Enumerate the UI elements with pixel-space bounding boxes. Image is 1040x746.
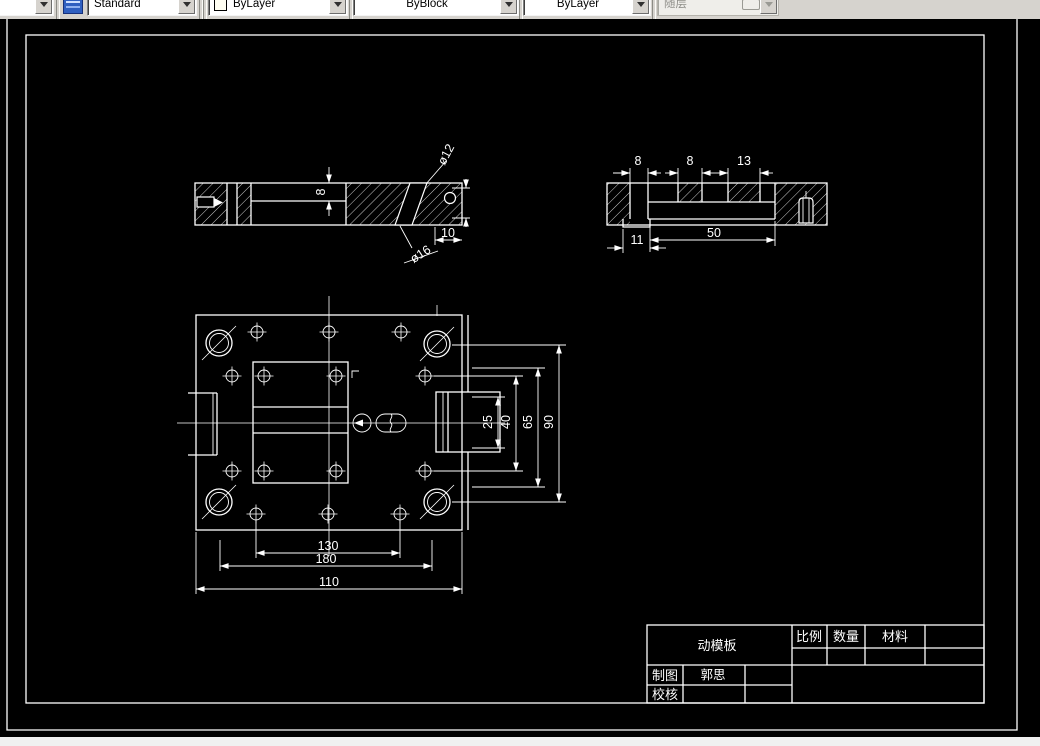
lineweight-combo[interactable]: ByBlock [353, 0, 519, 16]
layers-icon [63, 0, 83, 14]
guide-hole [420, 327, 454, 361]
material-label: 材料 [882, 629, 908, 644]
dim-label-90: 90 [542, 415, 556, 429]
chevron-down-icon[interactable] [35, 0, 52, 14]
sheet-border [7, 19, 1017, 730]
color-combo[interactable]: ByLayer [208, 0, 348, 16]
section-mark [352, 371, 359, 378]
guide-hole [202, 485, 236, 519]
plot-style-value: 随层 [658, 0, 738, 15]
plot-style-combo: 随层 [657, 0, 779, 16]
linetype-preview-box [742, 0, 760, 10]
chevron-down-icon[interactable] [178, 0, 195, 14]
plan-view: 25 40 65 90 130 180 110 [177, 296, 566, 594]
checker-label: 校核 [652, 687, 678, 702]
dim-label-50: 50 [707, 226, 721, 240]
drawing-canvas[interactable]: 8 ø12 10 ø16 [0, 19, 1040, 737]
drafter-name: 郭思 [700, 667, 725, 682]
plate-section-view: 8 8 13 50 11 [607, 154, 827, 253]
color-swatch [214, 0, 227, 11]
text-style-value: Standard [88, 0, 178, 15]
title-block: 动模板 比例 数量 材料 制图 郭思 校核 [647, 625, 984, 703]
chevron-down-icon[interactable] [329, 0, 346, 14]
quantity-label: 数量 [833, 629, 859, 644]
dim-label-25: 25 [481, 415, 495, 429]
dim-label-o16: ø16 [408, 242, 434, 265]
dim-label-8-step: 8 [687, 154, 694, 168]
docked-combo-partial[interactable] [0, 0, 54, 16]
drafter-label: 制图 [652, 668, 678, 683]
toolbar-separator [652, 0, 656, 19]
cad-drawing: 8 ø12 10 ø16 [0, 19, 1040, 737]
dim-label-10: 10 [441, 226, 455, 240]
dim-label-110: 110 [319, 575, 339, 589]
color-value: ByLayer [227, 0, 329, 15]
dim-label-65: 65 [521, 415, 535, 429]
part-name: 动模板 [697, 638, 736, 653]
toolbar: Standard ByLayer ByBlock ByLayer 随层 [0, 0, 1040, 20]
chevron-down-icon [760, 0, 777, 14]
toolbar-separator [203, 0, 207, 19]
toolbar-separator [56, 0, 60, 19]
guide-hole [420, 485, 454, 519]
dim-label-130: 130 [318, 539, 339, 553]
scale-label: 比例 [796, 629, 822, 644]
linetype-combo[interactable]: ByLayer [523, 0, 651, 16]
chevron-down-icon[interactable] [500, 0, 517, 14]
dim-label-8-thickness: 8 [314, 188, 328, 195]
chevron-down-icon[interactable] [632, 0, 649, 14]
guide-hole [202, 326, 236, 360]
dim-label-o12: ø12 [435, 142, 457, 168]
dim-label-180: 180 [316, 552, 337, 566]
side-section-view: 8 ø12 10 ø16 [195, 142, 470, 266]
linetype-value: ByLayer [524, 0, 632, 15]
lineweight-value: ByBlock [354, 0, 500, 15]
dim-label-11: 11 [631, 233, 644, 247]
dim-label-8-slot: 8 [635, 154, 642, 168]
layer-properties-button[interactable] [61, 0, 85, 19]
dim-label-40: 40 [499, 415, 513, 429]
text-style-combo[interactable]: Standard [87, 0, 197, 16]
dim-label-13: 13 [737, 154, 751, 168]
